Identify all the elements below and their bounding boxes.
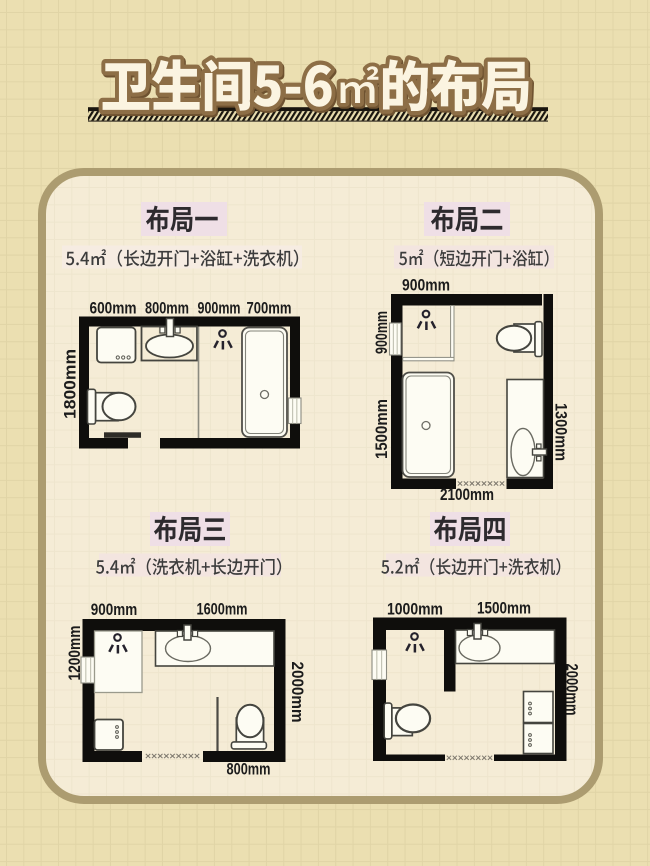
svg-text:800mm: 800mm bbox=[227, 761, 271, 779]
svg-text:2000mm: 2000mm bbox=[288, 662, 306, 723]
svg-text:2000mm: 2000mm bbox=[563, 664, 581, 716]
svg-text:1300mm: 1300mm bbox=[552, 403, 570, 461]
svg-text:1800mm: 1800mm bbox=[62, 349, 80, 419]
svg-text:600mm: 600mm bbox=[90, 300, 137, 318]
svg-text:800mm: 800mm bbox=[145, 300, 189, 318]
svg-text:900mm: 900mm bbox=[402, 277, 450, 295]
svg-text:1500mm: 1500mm bbox=[477, 600, 531, 618]
svg-text:1600mm: 1600mm bbox=[197, 601, 248, 619]
svg-text:900mm: 900mm bbox=[91, 601, 138, 619]
svg-text:2100mm: 2100mm bbox=[440, 486, 494, 504]
svg-text:700mm: 700mm bbox=[247, 300, 292, 318]
svg-text:1000mm: 1000mm bbox=[387, 601, 443, 619]
svg-text:900mm: 900mm bbox=[373, 311, 391, 354]
svg-text:1500mm: 1500mm bbox=[373, 399, 391, 459]
svg-text:1200mm: 1200mm bbox=[66, 626, 84, 681]
svg-text:900mm: 900mm bbox=[198, 300, 241, 318]
